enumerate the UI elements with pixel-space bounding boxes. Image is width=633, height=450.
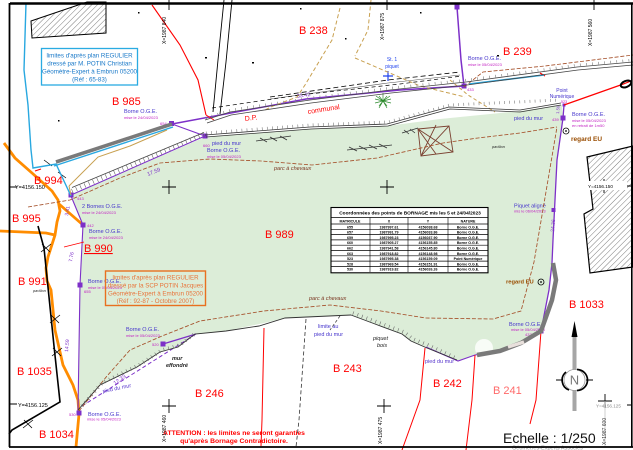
- svg-text:limites d'après plan REGULIER: limites d'après plan REGULIER: [46, 53, 133, 60]
- svg-text:Borne O.G.E.: Borne O.G.E.: [457, 262, 479, 266]
- svg-text:parc à chevaux: parc à chevaux: [273, 166, 312, 172]
- svg-text:Coordonnées des points de BORN: Coordonnées des points de BORNAGE mis le…: [339, 211, 481, 217]
- svg-text:Borne O.G.E.: Borne O.G.E.: [457, 236, 479, 240]
- svg-text:X=1987 600: X=1987 600: [602, 418, 608, 445]
- svg-text:piquet: piquet: [385, 64, 399, 70]
- svg-text:4156026.26: 4156026.26: [419, 268, 438, 272]
- svg-text:pavillon: pavillon: [32, 289, 46, 293]
- svg-text:B 243: B 243: [333, 363, 362, 375]
- svg-text:662: 662: [347, 247, 353, 251]
- svg-text:4156145.80: 4156145.80: [419, 247, 438, 251]
- svg-text:442: 442: [87, 223, 94, 228]
- svg-text:B 242: B 242: [433, 378, 462, 390]
- svg-text:B 990: B 990: [84, 243, 113, 255]
- svg-text:dressé par M. POTIN Christian: dressé par M. POTIN Christian: [47, 61, 132, 68]
- svg-text:659: 659: [347, 236, 353, 240]
- svg-text:piquet: piquet: [372, 336, 388, 342]
- svg-text:limites d'après plan REGULIER: limites d'après plan REGULIER: [112, 275, 199, 282]
- svg-text:520: 520: [152, 342, 159, 347]
- svg-text:NATURE: NATURE: [461, 219, 476, 223]
- svg-text:4156155.85: 4156155.85: [419, 241, 438, 245]
- svg-text:pied du mur: pied du mur: [425, 359, 454, 365]
- svg-text:B 1035: B 1035: [17, 366, 52, 378]
- svg-text:14.59: 14.59: [64, 339, 71, 352]
- svg-text:1987918.82: 1987918.82: [380, 252, 399, 256]
- svg-text:pied du mur: pied du mur: [212, 141, 241, 147]
- svg-text:en retrait de 1m50: en retrait de 1m50: [572, 123, 605, 128]
- svg-text:Y=4156.150: Y=4156.150: [588, 184, 613, 189]
- svg-text:Echelle : 1/250: Echelle : 1/250: [503, 430, 596, 446]
- svg-text:B 238: B 238: [299, 25, 328, 37]
- svg-text:X=1987 840: X=1987 840: [162, 17, 168, 44]
- svg-text:B 995: B 995: [12, 213, 41, 225]
- svg-text:mise le 05/04/2023: mise le 05/04/2023: [207, 154, 242, 159]
- svg-text:Géomètre-Expert à Embrun 05200: Géomètre-Expert à Embrun 05200: [42, 69, 137, 76]
- svg-text:mise le 24/04/2023: mise le 24/04/2023: [89, 235, 124, 240]
- svg-text:St. 1: St. 1: [387, 57, 398, 63]
- svg-text:limite au: limite au: [318, 324, 338, 330]
- svg-text:530: 530: [69, 412, 76, 417]
- svg-text:pied du mur: pied du mur: [514, 116, 543, 122]
- svg-text:433: 433: [467, 87, 474, 92]
- svg-text:mise le 05/04/2023: mise le 05/04/2023: [126, 333, 161, 338]
- svg-text:Borne O.G.E.: Borne O.G.E.: [457, 268, 479, 272]
- svg-text:mise le 05/04/2023: mise le 05/04/2023: [468, 62, 503, 67]
- svg-text:(Réf : 92-87 - Octobre 2007): (Réf : 92-87 - Octobre 2007): [117, 298, 195, 305]
- svg-text:655: 655: [347, 225, 353, 229]
- svg-text:Borne O.G.E.: Borne O.G.E.: [457, 241, 479, 245]
- svg-text:1987995.23: 1987995.23: [380, 236, 399, 240]
- svg-text:(Réf : 65-83): (Réf : 65-83): [72, 77, 107, 84]
- svg-text:4156033.86: 4156033.86: [419, 231, 438, 235]
- svg-text:B 991: B 991: [18, 276, 47, 288]
- svg-text:439: 439: [552, 117, 559, 122]
- svg-text:523: 523: [561, 100, 567, 104]
- svg-text:4156037.90: 4156037.90: [419, 236, 438, 240]
- svg-text:X=1987 460: X=1987 460: [162, 415, 168, 442]
- svg-text:mis le 06/04/2023: mis le 06/04/2023: [514, 209, 546, 214]
- svg-text:655: 655: [84, 289, 91, 294]
- svg-text:B 985: B 985: [112, 96, 141, 108]
- svg-text:660: 660: [347, 241, 353, 245]
- svg-text:Borne O.G.E.: Borne O.G.E.: [457, 252, 479, 256]
- svg-text:Y=4156.125: Y=4156.125: [18, 403, 48, 409]
- svg-text:660: 660: [203, 143, 210, 148]
- svg-text:X=1987 475: X=1987 475: [378, 417, 384, 444]
- svg-text:1987919.82: 1987919.82: [380, 268, 399, 272]
- svg-text:pied du mur: pied du mur: [314, 332, 343, 338]
- svg-text:B 246: B 246: [195, 388, 224, 400]
- svg-text:1987905.27: 1987905.27: [380, 241, 399, 245]
- svg-text:mise le 05/04/2023: mise le 05/04/2023: [87, 417, 122, 422]
- svg-text:1987969.54: 1987969.54: [380, 262, 399, 266]
- svg-text:4156151.91: 4156151.91: [419, 262, 438, 266]
- svg-text:B 239: B 239: [503, 46, 532, 58]
- svg-text:663: 663: [347, 252, 353, 256]
- svg-text:Borne O.G.E.: Borne O.G.E.: [457, 225, 479, 229]
- svg-text:N: N: [570, 373, 579, 388]
- svg-text:B 1033: B 1033: [569, 299, 604, 311]
- svg-text:1987995.38: 1987995.38: [380, 257, 399, 261]
- svg-text:regard EU: regard EU: [506, 280, 534, 286]
- svg-text:657: 657: [347, 231, 353, 235]
- svg-text:qu'après Bornage Contradictoir: qu'après Bornage Contradictoire.: [180, 438, 288, 445]
- svg-text:effondré: effondré: [166, 363, 188, 369]
- svg-text:X=1987 875: X=1987 875: [380, 13, 386, 40]
- svg-text:mur: mur: [172, 356, 183, 362]
- svg-text:Borne O.G.E.: Borne O.G.E.: [457, 231, 479, 235]
- svg-text:B 241: B 241: [493, 385, 522, 397]
- svg-text:528: 528: [347, 262, 353, 266]
- svg-text:1987941.58: 1987941.58: [380, 247, 399, 251]
- svg-text:1987997.61: 1987997.61: [380, 225, 399, 229]
- svg-text:523: 523: [347, 257, 353, 261]
- svg-text:Géomètre-Expert à Embrun 05200: Géomètre-Expert à Embrun 05200: [108, 291, 203, 298]
- svg-text:Point Numérique: Point Numérique: [454, 257, 483, 261]
- svg-text:regard EU: regard EU: [571, 136, 602, 143]
- svg-text:Y=4156.150: Y=4156.150: [15, 185, 45, 191]
- svg-text:4156148.98: 4156148.98: [419, 252, 438, 256]
- svg-text:X=1987 560: X=1987 560: [588, 19, 594, 46]
- svg-text:530: 530: [347, 268, 353, 272]
- svg-text:bois: bois: [377, 343, 387, 349]
- svg-text:4156038.68: 4156038.68: [419, 225, 438, 229]
- svg-text:Borne O.G.E.: Borne O.G.E.: [457, 247, 479, 251]
- svg-text:443: 443: [77, 196, 84, 201]
- svg-text:4156159.09: 4156159.09: [419, 257, 438, 261]
- svg-text:24.36: 24.36: [550, 219, 557, 232]
- svg-text:ATTENTION : les limites ne ser: ATTENTION : les limites ne seront garant…: [163, 430, 305, 437]
- svg-text:B 989: B 989: [265, 229, 294, 241]
- svg-text:parc à chevaux: parc à chevaux: [308, 296, 347, 302]
- svg-text:B 1034: B 1034: [39, 429, 74, 441]
- svg-text:pavillon: pavillon: [491, 145, 505, 149]
- svg-text:mise le 24/04/2023: mise le 24/04/2023: [82, 210, 117, 215]
- svg-text:dressé par la SCP POTIN Jacque: dressé par la SCP POTIN Jacques: [108, 283, 204, 290]
- svg-text:mise le 24/04/2023: mise le 24/04/2023: [124, 115, 159, 120]
- svg-text:MATRICULE: MATRICULE: [340, 219, 361, 223]
- svg-text:Y=4156.125: Y=4156.125: [596, 404, 621, 409]
- svg-text:1987991.79: 1987991.79: [380, 231, 399, 235]
